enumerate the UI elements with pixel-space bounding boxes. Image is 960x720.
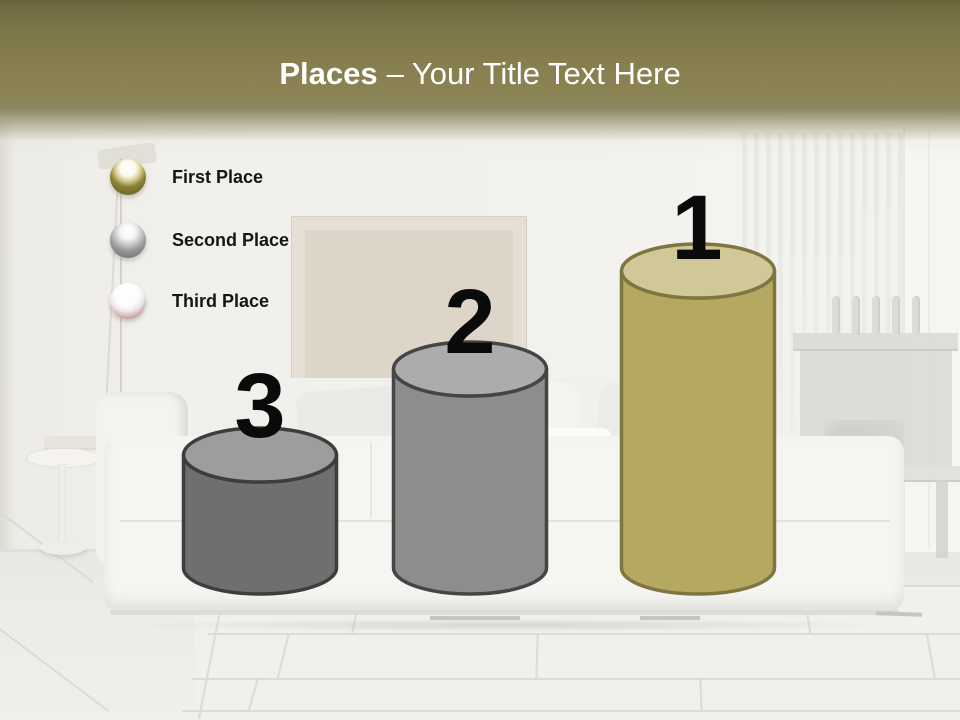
curtain-fold	[928, 130, 930, 550]
books-on-table	[44, 436, 96, 450]
floor-tile-line	[0, 625, 109, 712]
side-table-base	[40, 540, 86, 555]
legend-label: Second Place	[172, 230, 289, 251]
cylinder-second-place	[390, 338, 550, 605]
console-table-interior	[800, 350, 952, 468]
figurine	[872, 296, 880, 333]
flower-decor	[824, 420, 904, 466]
legend-item-third-place: Third Place	[110, 283, 269, 319]
floor-tile-line	[535, 634, 539, 680]
floor-tile-line	[926, 634, 936, 680]
presentation-slide: Places– Your Title Text Here First Place…	[0, 0, 960, 720]
slide-title: Places– Your Title Text Here	[0, 52, 960, 96]
sofa-front-edge	[110, 610, 900, 615]
sofa-leg	[640, 616, 700, 620]
legend-item-second-place: Second Place	[110, 222, 289, 258]
cylinder-first-place	[618, 240, 778, 605]
console-tabletop	[788, 466, 960, 482]
legend-item-first-place: First Place	[110, 159, 263, 195]
console-shelf	[793, 333, 958, 351]
bronze-sphere-icon	[110, 283, 146, 319]
figurine	[852, 296, 860, 335]
console-leg	[936, 480, 948, 558]
floor-tile-line	[0, 508, 93, 583]
floor-tile-line	[192, 678, 960, 680]
floor-tile-line	[208, 633, 960, 635]
cylinder-body	[394, 369, 547, 594]
side-table-top	[26, 448, 102, 468]
floor-tile-line	[351, 586, 363, 633]
figurine	[892, 296, 900, 334]
silver-sphere-icon	[110, 222, 146, 258]
figurine	[832, 296, 840, 333]
sofa-leg	[876, 611, 922, 617]
title-rest-part: – Your Title Text Here	[387, 56, 681, 91]
floor-tile-line	[699, 679, 702, 712]
curtain	[903, 126, 960, 560]
sofa-shadow	[120, 618, 900, 632]
title-bold-part: Places	[279, 56, 377, 91]
legend-label: First Place	[172, 167, 263, 188]
wall-corner-shade	[0, 120, 16, 560]
rank-number-1: 1	[657, 182, 737, 274]
gold-sphere-icon	[110, 159, 146, 195]
cylinder-graphic	[390, 338, 550, 600]
side-table-stem	[58, 464, 66, 544]
sofa-seam	[370, 442, 372, 518]
sofa-leg	[430, 616, 520, 620]
tiled-rug	[195, 585, 960, 720]
floor-tile-line	[276, 634, 289, 679]
rank-number-3: 3	[220, 360, 300, 452]
floor-tile-line	[182, 710, 960, 712]
cylinder-body	[622, 271, 775, 594]
floor-tile-line	[803, 586, 812, 634]
legend-label: Third Place	[172, 291, 269, 312]
sofa-armrest	[96, 392, 188, 568]
floor-tile-line	[247, 679, 258, 711]
rank-number-2: 2	[430, 276, 510, 368]
cylinder-graphic	[618, 240, 778, 600]
console-leg	[798, 480, 810, 562]
figurine	[912, 296, 920, 333]
